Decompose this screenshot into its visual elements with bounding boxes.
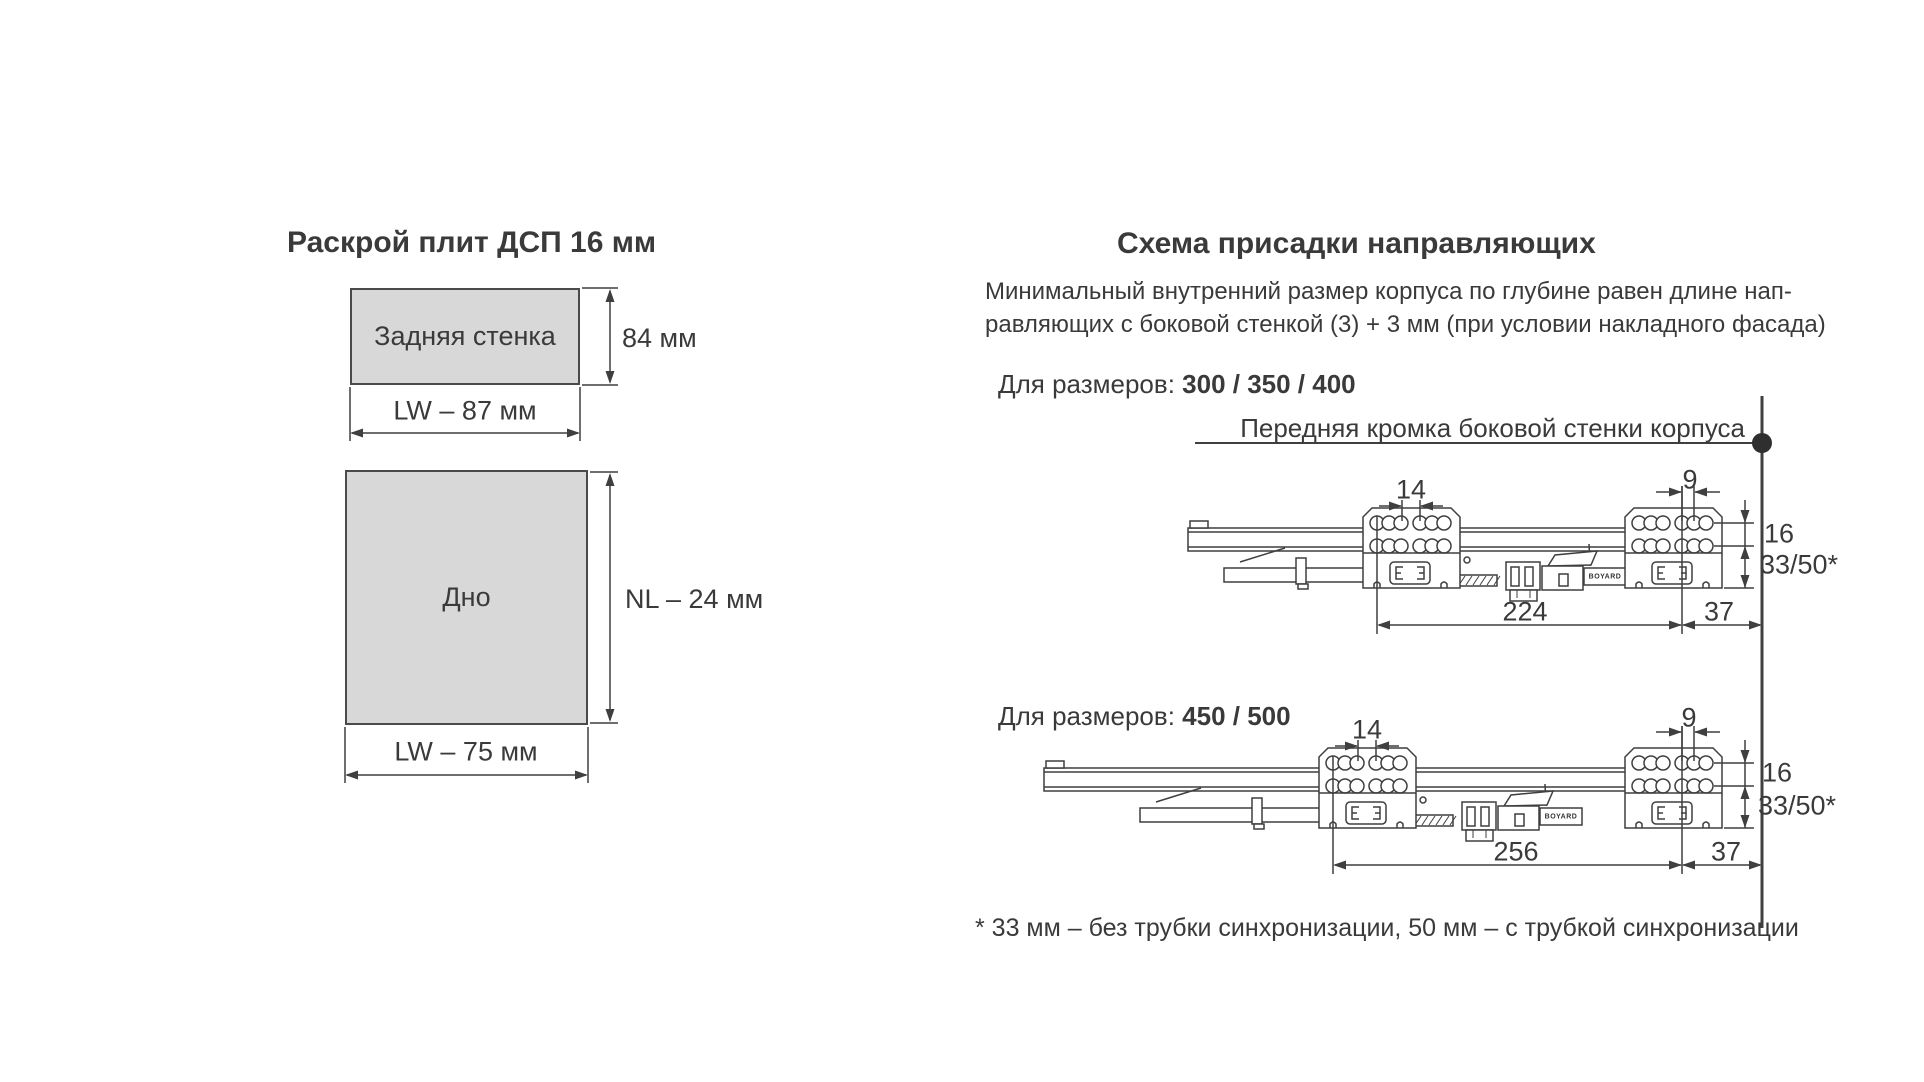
back-panel-rect: Задняя стенка bbox=[350, 288, 580, 385]
size-row-2-prefix: Для размеров: bbox=[998, 701, 1182, 731]
footnote: * 33 мм – без трубки синхронизации, 50 м… bbox=[975, 914, 1799, 943]
back-panel-label: Задняя стенка bbox=[374, 321, 556, 352]
d1-dim-hole-pitch-right: 9 bbox=[1682, 465, 1697, 496]
slide-drawing-300-350-400 bbox=[1188, 486, 1762, 634]
d1-boyard-logo: BOYARD bbox=[1589, 574, 1622, 581]
size-row-1-prefix: Для размеров: bbox=[998, 369, 1182, 399]
front-edge-label: Передняя кромка боковой стенки корпуса bbox=[1240, 413, 1745, 444]
d2-dim-hole-pitch-left: 14 bbox=[1352, 715, 1382, 746]
note-text: Минимальный внутренний размер корпуса по… bbox=[985, 275, 1826, 341]
d1-dim-hole-pitch-left: 14 bbox=[1396, 475, 1426, 506]
note-line-2: равляющих с боковой стенкой (3) + 3 мм (… bbox=[985, 308, 1826, 341]
size-row-2-sizes: 450 / 500 bbox=[1182, 701, 1290, 731]
back-panel-width-dim: LW – 87 мм bbox=[393, 396, 536, 427]
size-row-2: Для размеров: 450 / 500 bbox=[998, 701, 1291, 732]
size-row-1: Для размеров: 300 / 350 / 400 bbox=[998, 369, 1356, 400]
d2-dim-hole-pitch-right: 9 bbox=[1681, 703, 1696, 734]
size-row-1-sizes: 300 / 350 / 400 bbox=[1182, 369, 1355, 399]
note-line-1: Минимальный внутренний размер корпуса по… bbox=[985, 275, 1826, 308]
bottom-panel-width-dim: LW – 75 мм bbox=[394, 737, 537, 768]
bottom-panel-rect: Дно bbox=[345, 470, 588, 725]
back-panel-height-dim: 84 мм bbox=[622, 323, 697, 354]
d1-dim-row-spacing: 16 bbox=[1764, 519, 1794, 550]
bottom-panel-label: Дно bbox=[442, 582, 490, 613]
d2-dim-edge-distance: 33/50* bbox=[1758, 791, 1836, 822]
d1-dim-front-offset: 37 bbox=[1704, 597, 1734, 628]
d1-dim-length: 224 bbox=[1502, 597, 1547, 628]
right-title: Схема присадки направляющих bbox=[1117, 227, 1596, 261]
d1-dim-edge-distance: 33/50* bbox=[1760, 550, 1838, 581]
slide-drawing-450-500 bbox=[1044, 726, 1762, 874]
d2-dim-row-spacing: 16 bbox=[1762, 758, 1792, 789]
d2-boyard-logo: BOYARD bbox=[1545, 814, 1578, 821]
bottom-panel-height-dim: NL – 24 мм bbox=[625, 584, 763, 615]
d2-dim-front-offset: 37 bbox=[1711, 837, 1741, 868]
left-title: Раскрой плит ДСП 16 мм bbox=[287, 226, 656, 260]
d2-dim-length: 256 bbox=[1493, 837, 1538, 868]
technical-diagram-page: Раскрой плит ДСП 16 мм Задняя стенка 84 … bbox=[0, 0, 1924, 1082]
